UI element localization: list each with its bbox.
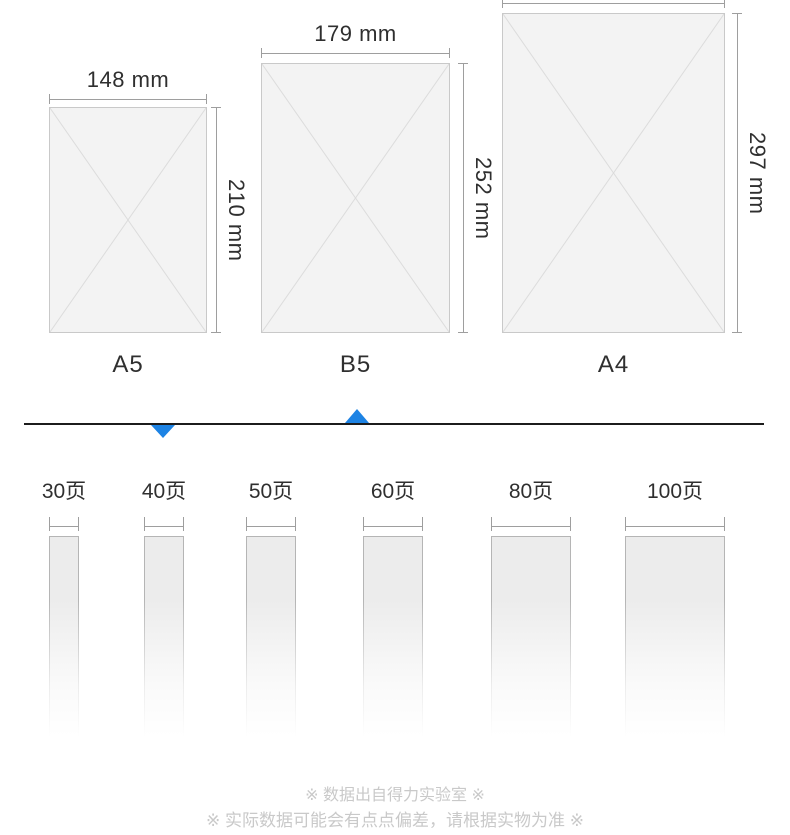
a5-width-dimension-line: [49, 99, 207, 100]
dimension-tick: [49, 517, 50, 531]
dimension-tick: [502, 0, 503, 8]
bar-fade-overlay: [49, 599, 79, 744]
dimension-tick: [422, 517, 423, 531]
page-dimension-line: [144, 526, 184, 527]
dimension-tick: [211, 107, 221, 108]
page-thickness-bar: [363, 536, 423, 744]
a4-height-dimension-label: 297 mm: [742, 13, 772, 333]
dimension-tick: [246, 517, 247, 531]
dimension-tick: [570, 517, 571, 531]
dimension-tick: [295, 517, 296, 531]
bar-fade-overlay: [144, 599, 184, 744]
page-dimension-line: [491, 526, 571, 527]
bar-fade-overlay: [246, 599, 296, 744]
a5-height-dimension-line: [216, 107, 217, 333]
page-dimension-line: [49, 526, 79, 527]
page-thickness-bar: [246, 536, 296, 744]
diagonal-cross-icon: [503, 14, 724, 332]
bar-fade-overlay: [625, 599, 725, 744]
page-thickness-bar: [49, 536, 79, 744]
dimension-tick: [211, 332, 221, 333]
page-thickness-bar: [491, 536, 571, 744]
page-dimension-line: [363, 526, 423, 527]
page-option-label: 40页: [104, 479, 224, 505]
a4-paper-outline: [502, 13, 725, 333]
a4-height-dimension-line: [737, 13, 738, 333]
b5-width-dimension-label: 179 mm: [261, 21, 450, 47]
a5-width-dimension-label: 148 mm: [49, 67, 207, 93]
bar-fade-overlay: [363, 599, 423, 744]
pointer-up-icon: [345, 409, 369, 423]
b5-paper-outline: [261, 63, 450, 333]
a4-size-name: A4: [502, 351, 725, 379]
dimension-tick: [206, 94, 207, 104]
dimension-tick: [724, 517, 725, 531]
dimension-tick: [625, 517, 626, 531]
page-option-label: 100页: [615, 479, 735, 505]
dimension-tick: [732, 332, 742, 333]
a5-height-dimension-label: 210 mm: [221, 107, 251, 333]
a5-size-name: A5: [49, 351, 207, 379]
b5-height-dimension-label: 252 mm: [468, 63, 498, 333]
dimension-tick: [49, 94, 50, 104]
dimension-tick: [183, 517, 184, 531]
dimension-tick: [458, 332, 468, 333]
dimension-tick: [732, 13, 742, 14]
dimension-tick: [491, 517, 492, 531]
page-dimension-line: [625, 526, 725, 527]
a4-width-dimension-line: [502, 3, 725, 4]
b5-height-dimension-line: [463, 63, 464, 333]
bar-fade-overlay: [491, 599, 571, 744]
footnote-lab-source: ※ 数据出自得力实验室 ※: [0, 786, 790, 806]
dimension-tick: [261, 48, 262, 58]
b5-width-dimension-line: [261, 53, 450, 54]
section-divider-line: [24, 423, 764, 425]
footnote-disclaimer: ※ 实际数据可能会有点点偏差，请根据实物为准 ※: [0, 810, 790, 832]
dimension-tick: [724, 0, 725, 8]
diagonal-cross-icon: [262, 64, 449, 332]
page-option-label: 80页: [471, 479, 591, 505]
page-thickness-bar: [625, 536, 725, 744]
diagonal-cross-icon: [50, 108, 206, 332]
pointer-down-icon: [151, 425, 175, 438]
paper-size-infographic: 148 mm 210 mm A5 179 mm 2: [0, 0, 790, 835]
page-dimension-line: [246, 526, 296, 527]
dimension-tick: [449, 48, 450, 58]
a5-paper-outline: [49, 107, 207, 333]
dimension-tick: [363, 517, 364, 531]
page-option-label: 50页: [211, 479, 331, 505]
b5-size-name: B5: [261, 351, 450, 379]
dimension-tick: [458, 63, 468, 64]
dimension-tick: [144, 517, 145, 531]
dimension-tick: [78, 517, 79, 531]
page-option-label: 60页: [333, 479, 453, 505]
page-thickness-bar: [144, 536, 184, 744]
